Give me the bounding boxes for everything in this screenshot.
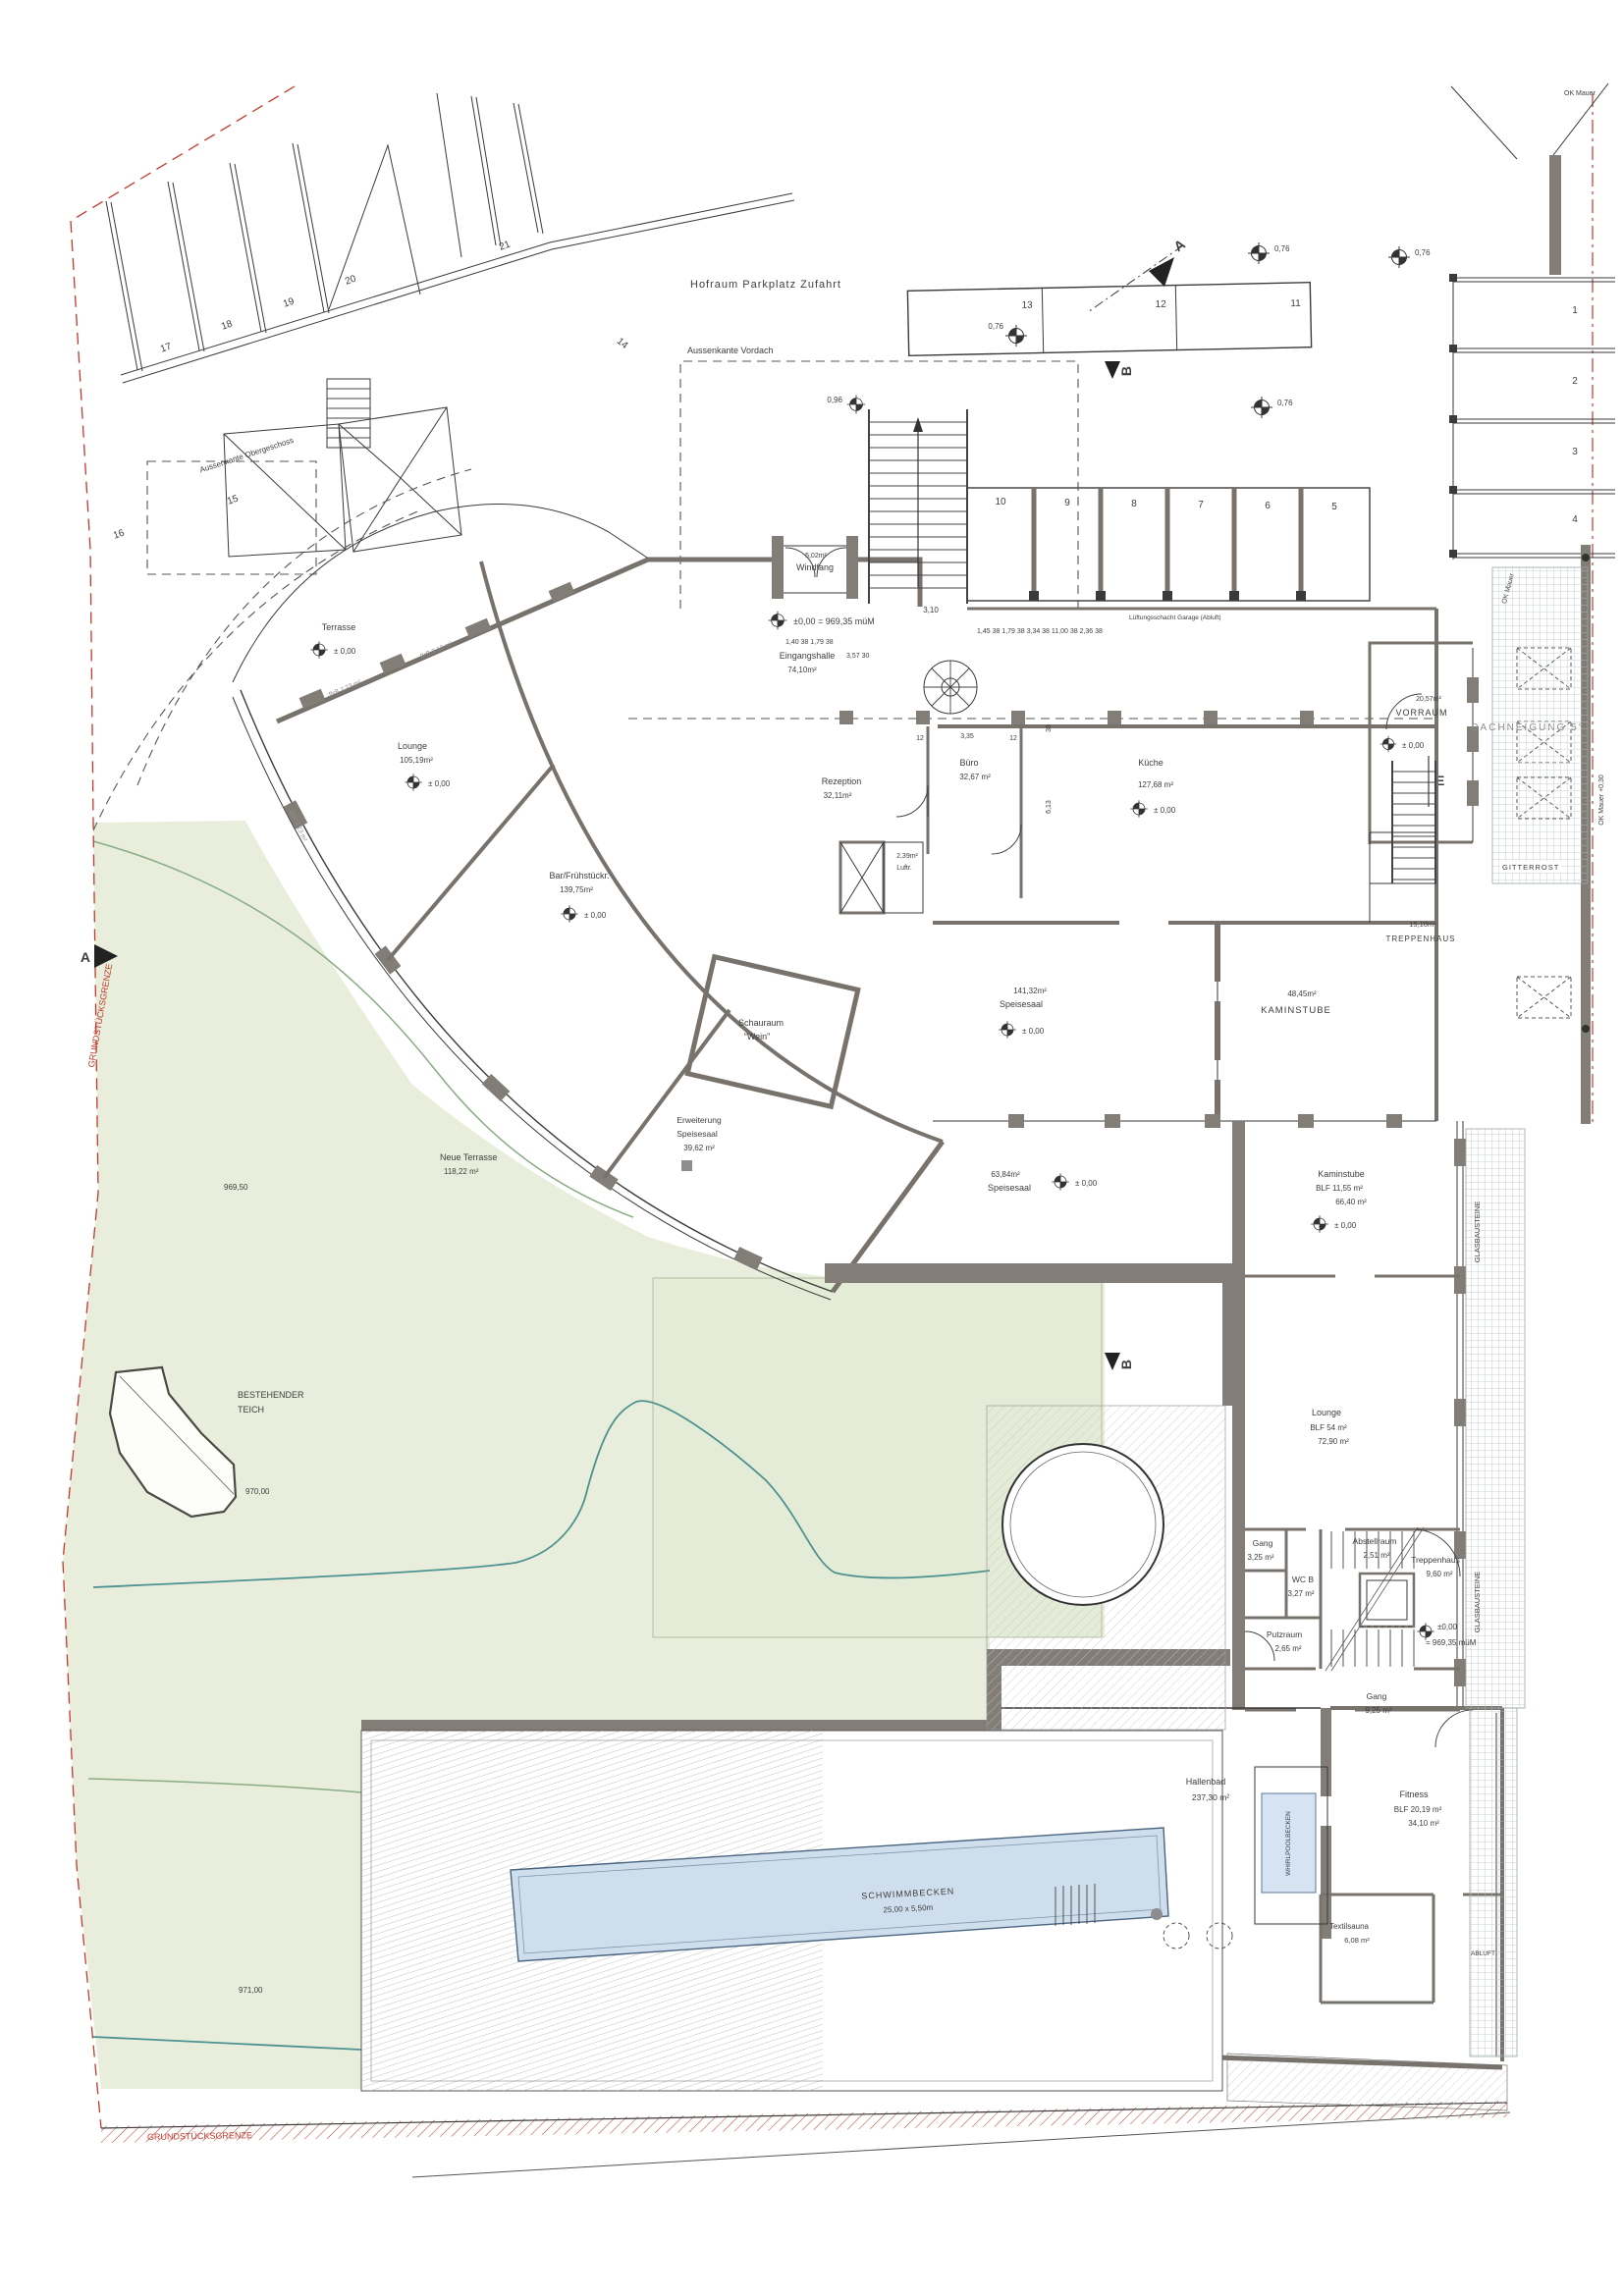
buero-label: Büro: [959, 758, 978, 768]
speisesaal-label: Speisesaal: [1000, 999, 1043, 1009]
rezeption-label: Rezeption: [822, 776, 862, 786]
entrance-stair: [869, 409, 967, 604]
ok-mauer-top: OK Mauer: [1564, 90, 1596, 97]
erweiterung-l3: 39,62 m²: [683, 1144, 715, 1152]
contour-label-96950: 969,50: [224, 1183, 248, 1192]
parking-21: 21: [498, 239, 513, 252]
treppenhaus-or-label: TREPPENHAUS: [1385, 934, 1455, 943]
pond-label-1: BESTEHENDER: [238, 1390, 304, 1400]
section-a-top: A: [1170, 236, 1187, 254]
gang1-label: Gang: [1253, 1538, 1273, 1548]
datum-stair-2: = 969,35 müM: [1426, 1638, 1477, 1647]
speisesaal63-area: 63,84m²: [991, 1170, 1020, 1179]
textilsauna-label: Textilsauna: [1329, 1922, 1370, 1931]
parking-2: 2: [1572, 376, 1578, 387]
textilsauna-area: 6,08 m²: [1344, 1936, 1370, 1945]
erweiterung-l1: Erweiterung: [676, 1115, 722, 1125]
wcb-label: WC B: [1292, 1575, 1315, 1584]
lower-east-wing: [1232, 1121, 1466, 1710]
terrasse-level: ± 0,00: [334, 647, 356, 656]
neue-terrasse-label: Neue Terrasse: [440, 1152, 497, 1162]
kueche-area: 127,68 m²: [1138, 780, 1173, 789]
parking-3: 3: [1572, 447, 1578, 457]
parking-1: 1: [1572, 305, 1578, 316]
partition-lounge-bar: [388, 765, 554, 960]
lounge-e-area: 72,90 m²: [1318, 1437, 1349, 1446]
wcb-area: 3,27 m²: [1287, 1589, 1314, 1598]
parking-4: 4: [1572, 514, 1578, 525]
gang1-area: 3,25 m²: [1247, 1553, 1273, 1562]
parking-5: 5: [1331, 502, 1337, 512]
parking-13: 13: [1021, 300, 1033, 311]
treppenhaus-or-area: 15,10m²: [1409, 920, 1436, 929]
bar-label: Bar/Frühstückr.: [549, 871, 609, 881]
gitterrost-label: GITTERROST: [1502, 863, 1559, 872]
dim-12a: 12: [916, 735, 924, 742]
parking-northwest-numbers: 17 18 19 20 21 14 15 16 Aussenkante Ober…: [112, 239, 630, 541]
section-b-top: B: [1118, 366, 1134, 376]
parking-16: 16: [112, 527, 127, 541]
parking-12: 12: [1155, 299, 1166, 310]
vorraum-label: VORRAUM: [1395, 708, 1447, 718]
treppenhaus-u-label: Treppenhaus: [1411, 1555, 1460, 1565]
south-band-wall: [825, 1263, 1234, 1283]
parking-row-13-11: 13 12 11: [907, 283, 1311, 356]
luft-name: Luftr.: [896, 865, 912, 872]
parking-15: 15: [226, 493, 241, 507]
section-a-left: A: [81, 949, 90, 965]
glasbausteine-label-1: GLASBAUSTEINE: [1473, 1201, 1482, 1263]
small-rooms-ne: [1370, 832, 1436, 923]
wall-point-1: [1582, 554, 1590, 561]
lounge-e-blf: BLF 54 m²: [1310, 1423, 1347, 1432]
kaminstube-u-area: 66,40 m²: [1335, 1198, 1367, 1206]
dim-entry-2: 3,57 30: [846, 653, 869, 660]
survey-076-1: 0,76: [1274, 244, 1290, 253]
survey-markers: 0,76 0,76 0,76 0,76 0,96: [827, 242, 1431, 418]
wall-point-2: [1582, 1025, 1590, 1033]
rezeption-area: 32,11m²: [824, 791, 852, 800]
window-label-1: BrB 3,13 m²: [419, 640, 454, 660]
whirlpool-label: WHIRLPOOLBECKEN: [1285, 1811, 1292, 1876]
parking-11: 11: [1290, 298, 1301, 309]
speisesaal-level: ± 0,00: [1022, 1027, 1045, 1036]
lounge-w-area: 105,19m²: [400, 756, 433, 765]
survey-096: 0,96: [827, 396, 842, 404]
kueche-label: Küche: [1138, 758, 1163, 768]
lueftung-label: Lüftungsschacht Garage (Abluft): [1129, 614, 1221, 621]
pond-label-2: TEICH: [238, 1405, 264, 1415]
dim-310: 3,10: [923, 606, 939, 614]
parking-14: 14: [615, 336, 630, 351]
dim-613: 6,13: [1046, 800, 1053, 814]
fitness-label: Fitness: [1399, 1789, 1429, 1799]
abstellraum-label: Abstellraum: [1353, 1536, 1397, 1546]
og-arc-1: [137, 469, 471, 785]
north-facade: [648, 560, 920, 607]
neue-terrasse-area: 118,22 m²: [444, 1167, 479, 1176]
dim-entry-1: 1,40 38 1,79 38: [785, 639, 834, 646]
parking-9: 9: [1064, 498, 1070, 508]
contour-label-97100: 971,00: [239, 1986, 263, 1995]
aussenkante-vordach-label: Aussenkante Vordach: [687, 346, 774, 355]
lounge-w-label: Lounge: [398, 741, 427, 751]
survey-076-4: 0,76: [1277, 399, 1293, 407]
fitness-area: 34,10 m²: [1408, 1819, 1439, 1828]
parking-6: 6: [1265, 501, 1271, 511]
kaminstube-u-blf: BLF 11,55 m²: [1316, 1184, 1363, 1193]
speisesaal63-level: ± 0,00: [1075, 1179, 1098, 1188]
parking-19: 19: [282, 295, 297, 309]
survey-076-3: 0,76: [988, 322, 1003, 331]
dachneigung-label: DACHNEIGUNG 5°: [1471, 722, 1584, 733]
spiral-stair: [924, 661, 977, 714]
abstellraum-area: 2,51 m²: [1363, 1551, 1389, 1560]
parking-7: 7: [1198, 500, 1204, 510]
garage-dim-chain: 1,45 38 1,79 38 3,34 38 11,00 38 2,36 38: [977, 628, 1103, 635]
dim-38: 38: [1046, 724, 1053, 732]
deck-post: [1151, 1908, 1163, 1920]
wall-top-right: [1549, 155, 1561, 275]
boundary-label-bottom: GRUNDSTÜCKSGRENZE: [147, 2130, 252, 2142]
schauraum-label: Schauraum: [738, 1018, 784, 1028]
windfang-label: Windfang: [796, 562, 834, 572]
datum-stair-1: ±0,00: [1437, 1623, 1458, 1631]
survey-076-2: 0,76: [1415, 248, 1431, 257]
aussenkante-og-label: Aussenkante Obergeschoss: [198, 436, 295, 474]
inner-corridor-wall: [481, 561, 943, 1142]
round-terrace: [1002, 1444, 1163, 1605]
partition-bar-erweiterung: [604, 1010, 730, 1178]
kueche-level: ± 0,00: [1154, 806, 1176, 815]
grating-strip-lower: [1470, 1708, 1517, 2056]
windfang-area: 5,02m²: [805, 553, 827, 560]
schauraum-sub: "Wein": [744, 1032, 771, 1041]
bar-area: 139,75m²: [560, 885, 593, 894]
parking-18: 18: [220, 318, 235, 332]
erweiterung-l2: Speisesaal: [676, 1129, 718, 1139]
parking-column-1-4: 1 2 3 4: [1449, 274, 1615, 560]
buero-area: 32,67 m²: [959, 773, 991, 781]
putzraum-label: Putzraum: [1267, 1629, 1302, 1639]
kaminstube-o-area: 48,45m²: [1287, 989, 1317, 998]
kaminstube-o-label: KAMINSTUBE: [1261, 1005, 1331, 1016]
abluft-label: ABLUFT: [1471, 1950, 1495, 1957]
luft-area: 2,39m²: [896, 853, 918, 860]
gang2-area: 9,25 m²: [1365, 1706, 1391, 1715]
speisesaal63-label: Speisesaal: [988, 1183, 1031, 1193]
vorraum-area: 20,57m²: [1416, 696, 1441, 703]
boundary-topleft: [71, 86, 295, 221]
parking-8: 8: [1131, 499, 1137, 509]
speisesaal-area: 141,32m²: [1013, 987, 1047, 995]
terrasse-label: Terrasse: [322, 622, 356, 632]
parking-northwest: [106, 93, 794, 574]
floor-plan-canvas: BESTEHENDER TEICH 969,50 970,00 971,00 N…: [0, 0, 1623, 2296]
terrace-railing: [233, 505, 650, 682]
halle-label: Eingangshalle: [780, 651, 836, 661]
hallenbad-label: Hallenbad: [1186, 1777, 1226, 1787]
existing-building-roof: [147, 379, 461, 574]
glasbausteine-label-2: GLASBAUSTEINE: [1473, 1572, 1482, 1633]
treppenhaus-u-area: 9,60 m²: [1426, 1570, 1452, 1578]
ok-mauer-low: OK Mauer +0,30: [1598, 774, 1605, 826]
dim-12b: 12: [1009, 735, 1017, 742]
lounge-w-level: ± 0,00: [428, 779, 451, 788]
lounge-e-label: Lounge: [1312, 1408, 1341, 1417]
parking-17: 17: [159, 341, 174, 354]
gang2-label: Gang: [1367, 1691, 1387, 1701]
kaminstube-u-level: ± 0,00: [1334, 1221, 1357, 1230]
hofraum-label: Hofraum Parkplatz Zufahrt: [690, 279, 841, 291]
putzraum-area: 2,65 m²: [1274, 1644, 1301, 1653]
vorraum-level: ± 0,00: [1402, 741, 1425, 750]
erweiterung-post: [681, 1160, 692, 1171]
datum-entrance: ±0,00 = 969,35 müM: [793, 616, 875, 626]
parking-20: 20: [344, 273, 358, 287]
fitness-blf: BLF 20,19 m²: [1394, 1805, 1442, 1814]
og-arc-2: [93, 510, 420, 830]
dim-335: 3,35: [960, 733, 974, 740]
contour-label-97000: 970,00: [245, 1487, 270, 1496]
halle-area: 74,10m²: [787, 666, 817, 674]
hallenbad-area: 237,30 m²: [1192, 1792, 1229, 1802]
bar-level: ± 0,00: [584, 911, 607, 920]
parking-10: 10: [995, 497, 1006, 507]
kaminstube-u-label: Kaminstube: [1318, 1169, 1365, 1179]
garage-row-10-5: 10 9 8 7 6 5: [967, 488, 1370, 601]
entrance-canopy: Aussenkante Vordach: [628, 346, 1434, 724]
section-b-mid: B: [1118, 1360, 1134, 1369]
courtyard-parking: Hofraum Parkplatz Zufahrt 13 12 11 10 9 …: [690, 83, 1615, 1124]
